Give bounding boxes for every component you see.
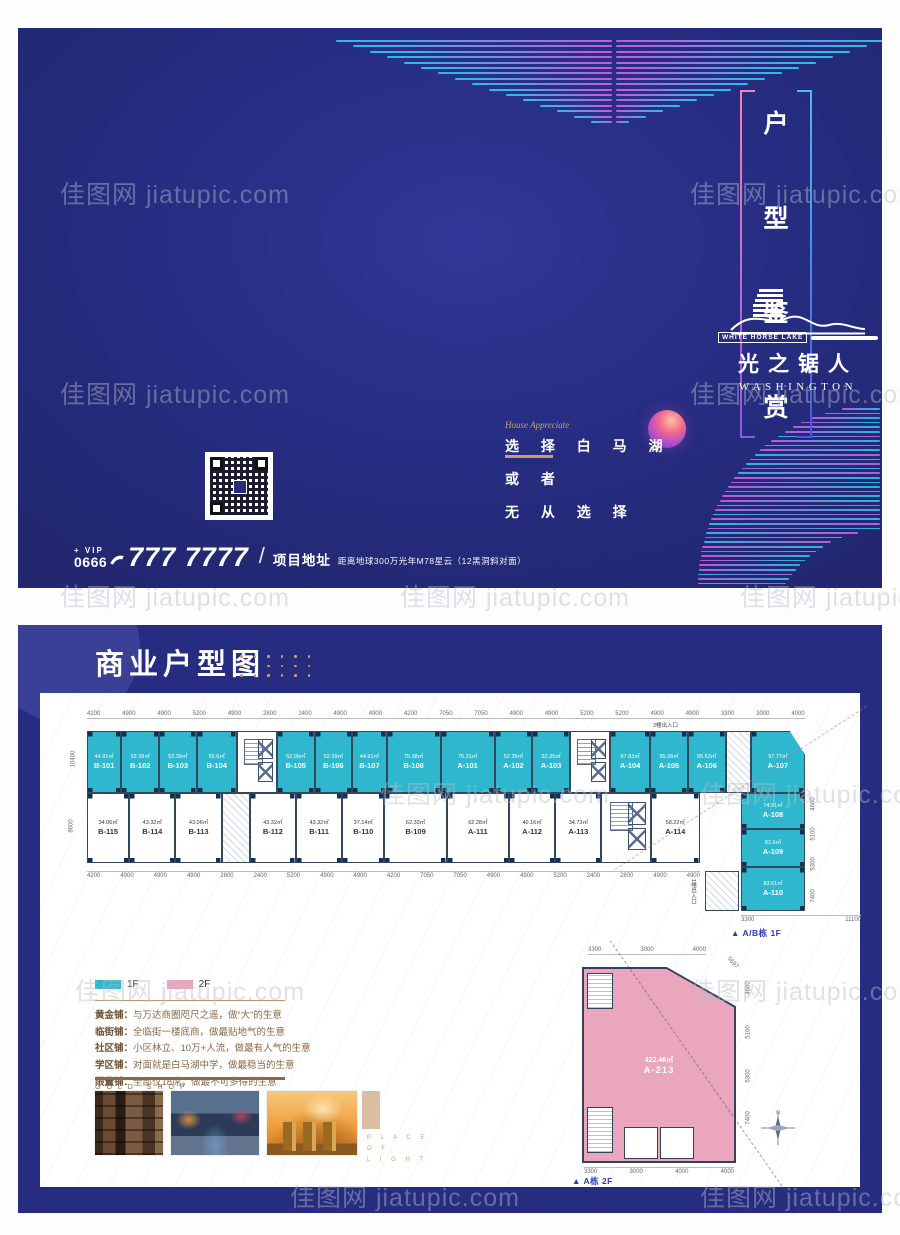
place-of-light-label: P L A C EO FL I G H T: [367, 1133, 428, 1165]
dim-top: 3000: [756, 711, 769, 717]
unit-B-105: 52.09㎡B-105: [277, 731, 315, 793]
unit-A-104: 67.83㎡A-104: [610, 731, 650, 793]
unit-B-110: 37.14㎡B-110: [342, 793, 384, 863]
phone-icon: [109, 552, 125, 568]
unit-A-111: 62.28㎡A-111: [447, 793, 509, 863]
unit-B-112: 43.32㎡B-112: [250, 793, 296, 863]
stair-core: [587, 973, 613, 1009]
logo-mark-icon: [723, 286, 873, 336]
dim-top: 4900: [157, 711, 170, 717]
plan-1f-caption: ▲ A/B栋 1F: [731, 927, 781, 939]
unit-B-107: 44.91㎡B-107: [352, 731, 386, 793]
dim-top: 7050: [439, 711, 452, 717]
hotline-number: 777 7777: [128, 545, 249, 569]
logo-name-en: WASHINGTON: [718, 381, 878, 393]
dim-top: 5200: [615, 711, 628, 717]
dim-top: 2400: [298, 711, 311, 717]
plan-card: 4200490049005200490028002400490049004200…: [40, 693, 860, 1187]
stair-core: [222, 793, 250, 863]
stair-core: [587, 1107, 613, 1153]
plan-1f: 4200490049005200490028002400490049004200…: [55, 701, 845, 941]
brand-logo: WHITE HORSE LAKE 光之锯人 WASHINGTON: [718, 286, 878, 393]
dim-top: 4900: [686, 711, 699, 717]
dim-top: 4900: [334, 711, 347, 717]
photo-city: [171, 1091, 259, 1155]
photo-coins: [267, 1091, 357, 1155]
dim-top: 5200: [580, 711, 593, 717]
legend: 1F2F: [95, 979, 228, 990]
logo-banner-bar: [811, 336, 878, 340]
unit-B-108: 75.38㎡B-108: [387, 731, 441, 793]
shop-line: 学区铺：对面就是白马湖中学，做最稳当的生意: [95, 1058, 455, 1075]
unit-A-110: 83.61㎡A-110: [741, 867, 805, 911]
restroom-block: [624, 1127, 658, 1159]
unit-B-111: 43.32㎡B-111: [296, 793, 342, 863]
gold-dots-decor: [240, 655, 310, 677]
legend-item-2F: 2F: [167, 979, 211, 990]
hotline-row: + VIP 0666 777 7777 / 项目地址 距离地球300万光年M78…: [74, 543, 526, 569]
dim-top: 4900: [651, 711, 664, 717]
dim-top: 2800: [263, 711, 276, 717]
unit-A-106: 95.63㎡A-106: [688, 731, 726, 793]
unit-A-103: 52.35㎡A-103: [532, 731, 570, 793]
unit-B-115: 34.06㎡B-115: [87, 793, 129, 863]
unit-B-106: 52.39㎡B-106: [315, 731, 353, 793]
logo-banner-text: WHITE HORSE LAKE: [718, 332, 807, 343]
svg-text:N: N: [776, 1110, 780, 1116]
dim-top: 4000: [791, 711, 804, 717]
unit-A-112: 40.16㎡A-112: [509, 793, 555, 863]
dim-top: 7050: [474, 711, 487, 717]
compass-icon: N: [758, 1108, 798, 1148]
qr-code: [205, 452, 273, 520]
dim-top: 5200: [193, 711, 206, 717]
shop-line: 社区铺：小区林立、10万+人流，做最有人气的生意: [95, 1041, 455, 1058]
logo-name-cn: 光之锯人: [718, 348, 878, 378]
shop-line: 黄金铺：与万达商圈咫尺之遥，做“大”的生意: [95, 1008, 455, 1025]
dim-top: 4200: [87, 711, 100, 717]
unit-A-101: 75.31㎡A-101: [441, 731, 495, 793]
unit-A-108: 74.91㎡A-108: [741, 793, 805, 829]
coin-stacks: [283, 1122, 341, 1151]
stair-elevator-core: [601, 793, 650, 863]
slogan-script: House Appreciate: [505, 420, 672, 430]
brochure-page: 户型鉴赏 WHITE HORSE LAKE 光之锯人 WASHINGTON: [0, 0, 900, 1235]
floorplan-panel: 商业户型图 4200490049005200490028002400490049…: [18, 625, 882, 1213]
dim-top: 4900: [510, 711, 523, 717]
divider-line: [95, 1000, 285, 1001]
restroom-block: [660, 1127, 694, 1159]
slogan-line-3: 无 从 选 择: [505, 502, 672, 522]
stair-elevator-core: [570, 731, 610, 793]
unit-B-102: 52.39㎡B-102: [121, 731, 159, 793]
slogan-line-2: 或 者: [505, 469, 672, 489]
legend-item-1F: 1F: [95, 979, 139, 990]
dim-top: 4900: [122, 711, 135, 717]
tan-block-decor: [362, 1091, 380, 1129]
dim-top: 4900: [369, 711, 382, 717]
stair-core: [705, 871, 739, 911]
dim-top: 4900: [228, 711, 241, 717]
unit-B-104: 55.6㎡B-104: [197, 731, 237, 793]
dim-top: 3300: [721, 711, 734, 717]
photo-library: [95, 1091, 163, 1155]
cover-panel: 户型鉴赏 WHITE HORSE LAKE 光之锯人 WASHINGTON: [18, 28, 882, 588]
dim-top: 4200: [404, 711, 417, 717]
plan-2f: 3300300040005697422.46㎡A-213460051005300…: [560, 945, 850, 1185]
unit-B-109: 62.33㎡B-109: [384, 793, 446, 863]
gold-shop-label: GOLD SHOP: [95, 1084, 191, 1091]
plan-2f-caption: ▲ A栋 2F: [572, 1175, 613, 1187]
slogan-line-1: 选 择 白 马 湖: [505, 436, 672, 456]
gold-underline: [505, 455, 553, 458]
unit-B-103: 52.39㎡B-103: [159, 731, 197, 793]
unit-B-101: 44.91㎡B-101: [87, 731, 121, 793]
dim-top: 4900: [545, 711, 558, 717]
unit-A-109: 82.6㎡A-109: [741, 829, 805, 867]
slogan-block: House Appreciate 选 择 白 马 湖 或 者 无 从 选 择: [505, 420, 672, 535]
unit-B-114: 43.32㎡B-114: [129, 793, 175, 863]
address-text: 距离地球300万光年M78星云（12黑洞斜对面）: [338, 555, 526, 567]
unit-A-114: 58.22㎡A-114: [651, 793, 700, 863]
thick-line: [95, 1077, 285, 1080]
unit-A-113: 34.73㎡A-113: [555, 793, 601, 863]
entrance-label-top: 2幢出入口: [653, 721, 678, 729]
unit-A-102: 52.35㎡A-102: [495, 731, 533, 793]
stair-elevator-core: [237, 731, 277, 793]
unit-A-105: 95.36㎡A-105: [650, 731, 688, 793]
divider-slash: /: [259, 543, 265, 569]
shop-line: 临街铺：全临街一楼底商，做最贴地气的生意: [95, 1025, 455, 1042]
entrance-label-side: 1幢出入口: [689, 879, 697, 904]
address-label: 项目地址: [273, 549, 331, 569]
unit-B-113: 43.06㎡B-113: [175, 793, 221, 863]
hotline-area-code: 0666: [74, 555, 107, 569]
